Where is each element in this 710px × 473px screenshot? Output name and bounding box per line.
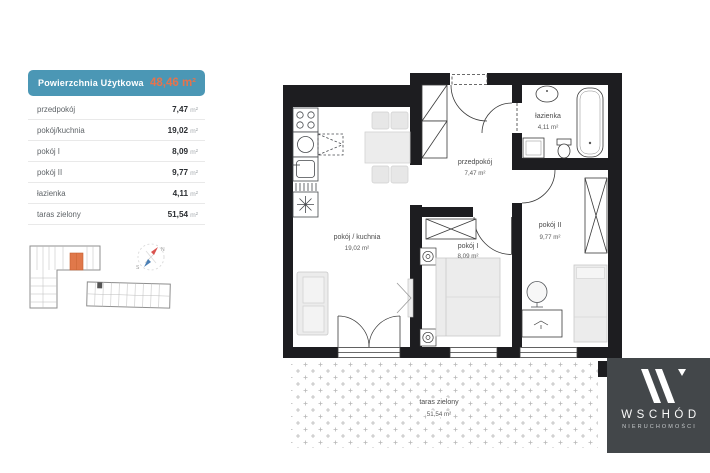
row-label: pokój I <box>37 147 60 156</box>
kitchen-fixtures <box>292 108 343 217</box>
row-unit: m² <box>190 128 198 135</box>
office-chair-icon <box>527 282 547 308</box>
counter-dashed <box>318 134 343 155</box>
nightstand-icon <box>420 329 436 346</box>
chair-icon <box>391 112 408 129</box>
compass-icon: N S <box>136 244 165 271</box>
building-site-map: N S <box>25 238 175 316</box>
hall-wardrobe-icon <box>422 85 447 158</box>
flyer-page: Powierzchnia Użytkowa 48,46 m² przedpokó… <box>0 0 710 473</box>
row-unit: m² <box>190 212 198 219</box>
room-label: pokój I <box>458 243 479 250</box>
toilet-icon <box>557 139 571 158</box>
table-row: łazienka 4,11m² <box>28 183 205 204</box>
entrance-door <box>451 75 487 122</box>
single-bed-icon <box>574 265 607 342</box>
window <box>450 348 497 358</box>
bathroom-fixtures <box>523 86 603 158</box>
dishwasher-hatch-icon <box>296 183 316 191</box>
row-value: 9,77m² <box>172 168 198 177</box>
table-icon <box>365 132 410 163</box>
room-area-label: 7,47 m² <box>465 170 486 177</box>
washbasin-icon <box>536 86 558 102</box>
row-value: 51,54m² <box>168 210 198 219</box>
tv-icon <box>397 279 413 317</box>
room-area-label: 51,54 m² <box>427 411 451 418</box>
double-bed-icon <box>436 258 500 336</box>
table-row: taras zielony 51,54m² <box>28 204 205 225</box>
row-unit: m² <box>190 149 198 156</box>
row-unit: m² <box>190 107 198 114</box>
sofa-icon <box>297 272 328 335</box>
row-label: pokój II <box>37 168 62 177</box>
room-area-label: 19,02 m² <box>345 245 369 252</box>
area-table-title: Powierzchnia Użytkowa <box>38 78 144 88</box>
bathroom-door <box>482 103 517 133</box>
room-area-label: 8,09 m² <box>458 253 479 260</box>
building-outline-long <box>87 282 171 308</box>
row-value: 7,47m² <box>172 105 198 114</box>
row-value: 19,02m² <box>168 126 198 135</box>
compass-north-label: N <box>161 247 165 253</box>
washing-machine-icon <box>523 138 544 158</box>
room-area-label: 9,77 m² <box>540 234 561 241</box>
compass-north-needle <box>151 247 158 255</box>
room-label: taras zielony <box>419 399 459 406</box>
sink-icon <box>293 132 318 157</box>
area-table: Powierzchnia Użytkowa 48,46 m² przedpokó… <box>28 70 205 225</box>
room-area-label: 4,11 m² <box>538 124 559 131</box>
boiler-icon <box>293 192 318 217</box>
building-entrance-mark <box>97 282 102 288</box>
row-label: przedpokój <box>37 105 75 114</box>
total-area-value: 48,46 m² <box>150 77 196 89</box>
row-value: 4,11m² <box>173 189 198 198</box>
compass-south-label: S <box>136 265 140 271</box>
table-row: przedpokój 7,47m² <box>28 99 205 120</box>
row-label: łazienka <box>37 189 66 198</box>
logo-brand-text: WSCHÓD <box>616 409 700 421</box>
room1-door <box>474 217 512 255</box>
chair-icon <box>391 166 408 183</box>
dining-set <box>365 112 410 183</box>
room2-door <box>522 170 555 203</box>
room-label: pokój / kuchnia <box>334 234 381 241</box>
table-row: pokój/kuchnia 19,02m² <box>28 120 205 141</box>
row-unit: m² <box>190 170 198 177</box>
logo-subtitle-text: NIERUCHOMOŚCI <box>620 424 697 430</box>
bathtub-icon <box>577 88 603 157</box>
room-label: przedpokój <box>458 159 493 166</box>
stove-icon <box>293 108 318 132</box>
row-value: 8,09m² <box>172 147 198 156</box>
chair-icon <box>372 112 389 129</box>
room-label: łazienka <box>535 113 561 120</box>
desk-icon <box>522 310 562 337</box>
table-row: pokój II 9,77m² <box>28 162 205 183</box>
balcony-door <box>338 316 400 357</box>
window <box>520 348 577 358</box>
table-row: pokój I 8,09m² <box>28 141 205 162</box>
fridge-icon <box>292 157 318 181</box>
row-label: pokój/kuchnia <box>37 126 85 135</box>
room-label: pokój II <box>539 222 562 229</box>
chair-icon <box>372 166 389 183</box>
row-unit: m² <box>190 191 198 198</box>
area-table-header: Powierzchnia Użytkowa 48,46 m² <box>28 70 205 96</box>
room2-furniture <box>522 178 607 342</box>
room1-furniture <box>420 219 500 346</box>
wardrobe-icon <box>426 219 476 239</box>
area-table-rows: przedpokój 7,47m² pokój/kuchnia 19,02m² … <box>28 99 205 225</box>
nightstand-icon <box>420 248 436 265</box>
agency-logo: WSCHÓD NIERUCHOMOŚCI <box>607 358 710 453</box>
logo-w-icon <box>631 369 687 403</box>
wardrobe-icon <box>585 178 607 253</box>
row-label: taras zielony <box>37 210 81 219</box>
